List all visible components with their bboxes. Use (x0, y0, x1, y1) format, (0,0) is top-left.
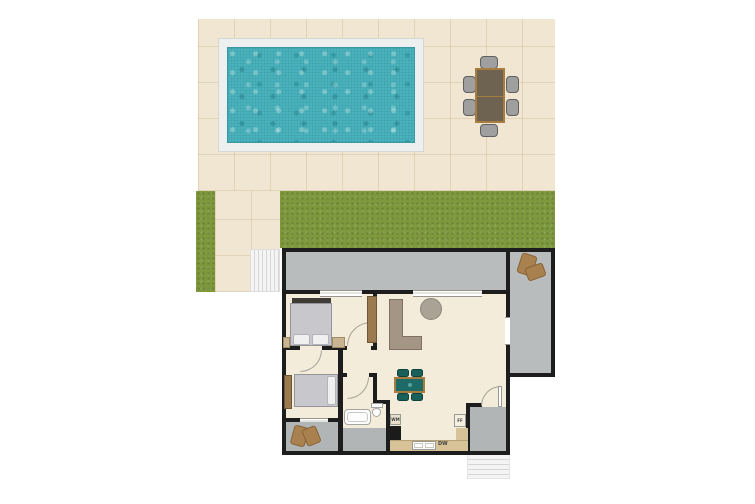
toilet-bowl (372, 408, 381, 417)
sofa-section-horizontal (402, 336, 422, 350)
wardrobe (284, 375, 292, 409)
bed-2-pillow (327, 376, 336, 405)
floor-plan: WM DW FF (0, 0, 755, 504)
sink-basin (414, 443, 423, 448)
dining-chair (397, 393, 409, 401)
outdoor-table (475, 68, 505, 123)
walkway-steps (250, 249, 280, 292)
fridge-freezer-label: FF (457, 418, 462, 423)
kitchen-sink (412, 441, 436, 450)
dining-chair (411, 393, 423, 401)
wardrobe (367, 296, 377, 343)
nightstand (283, 337, 290, 348)
dining-table-center (408, 383, 412, 387)
outdoor-chair (506, 99, 519, 116)
window (320, 290, 362, 297)
toilet (371, 403, 383, 417)
window (413, 290, 482, 297)
oven (390, 426, 401, 440)
outdoor-table-seam (477, 96, 503, 97)
dishwasher-label: DW (438, 442, 448, 447)
dining-table (394, 377, 425, 393)
entry-steps (467, 455, 510, 479)
sofa-section-vertical (389, 299, 403, 350)
store-room-plant (288, 424, 321, 449)
entry-hall-floor (470, 407, 506, 451)
kitchen-counter-return (456, 428, 468, 440)
bed-1-pillow (312, 334, 329, 345)
lawn-strip-main (280, 191, 555, 248)
pool-water (227, 47, 415, 143)
washing-machine: WM (390, 414, 401, 425)
sink-basin (425, 443, 434, 448)
nightstand (332, 337, 345, 348)
dining-chair (411, 369, 423, 377)
outdoor-chair (506, 76, 519, 93)
washing-machine-label: WM (391, 417, 399, 422)
coffee-table (420, 298, 442, 320)
outdoor-chair (480, 124, 498, 137)
bed-1-pillow (293, 334, 310, 345)
patio-door (505, 317, 510, 345)
wall (371, 346, 377, 350)
bathtub-basin (347, 412, 368, 422)
shower-floor (343, 428, 386, 451)
dining-chair (397, 369, 409, 377)
fridge-freezer: FF (454, 414, 466, 427)
porch-plant (513, 252, 546, 285)
entry-door-leaf (498, 386, 502, 407)
bathtub (344, 409, 371, 425)
lawn-strip-left (196, 191, 215, 292)
